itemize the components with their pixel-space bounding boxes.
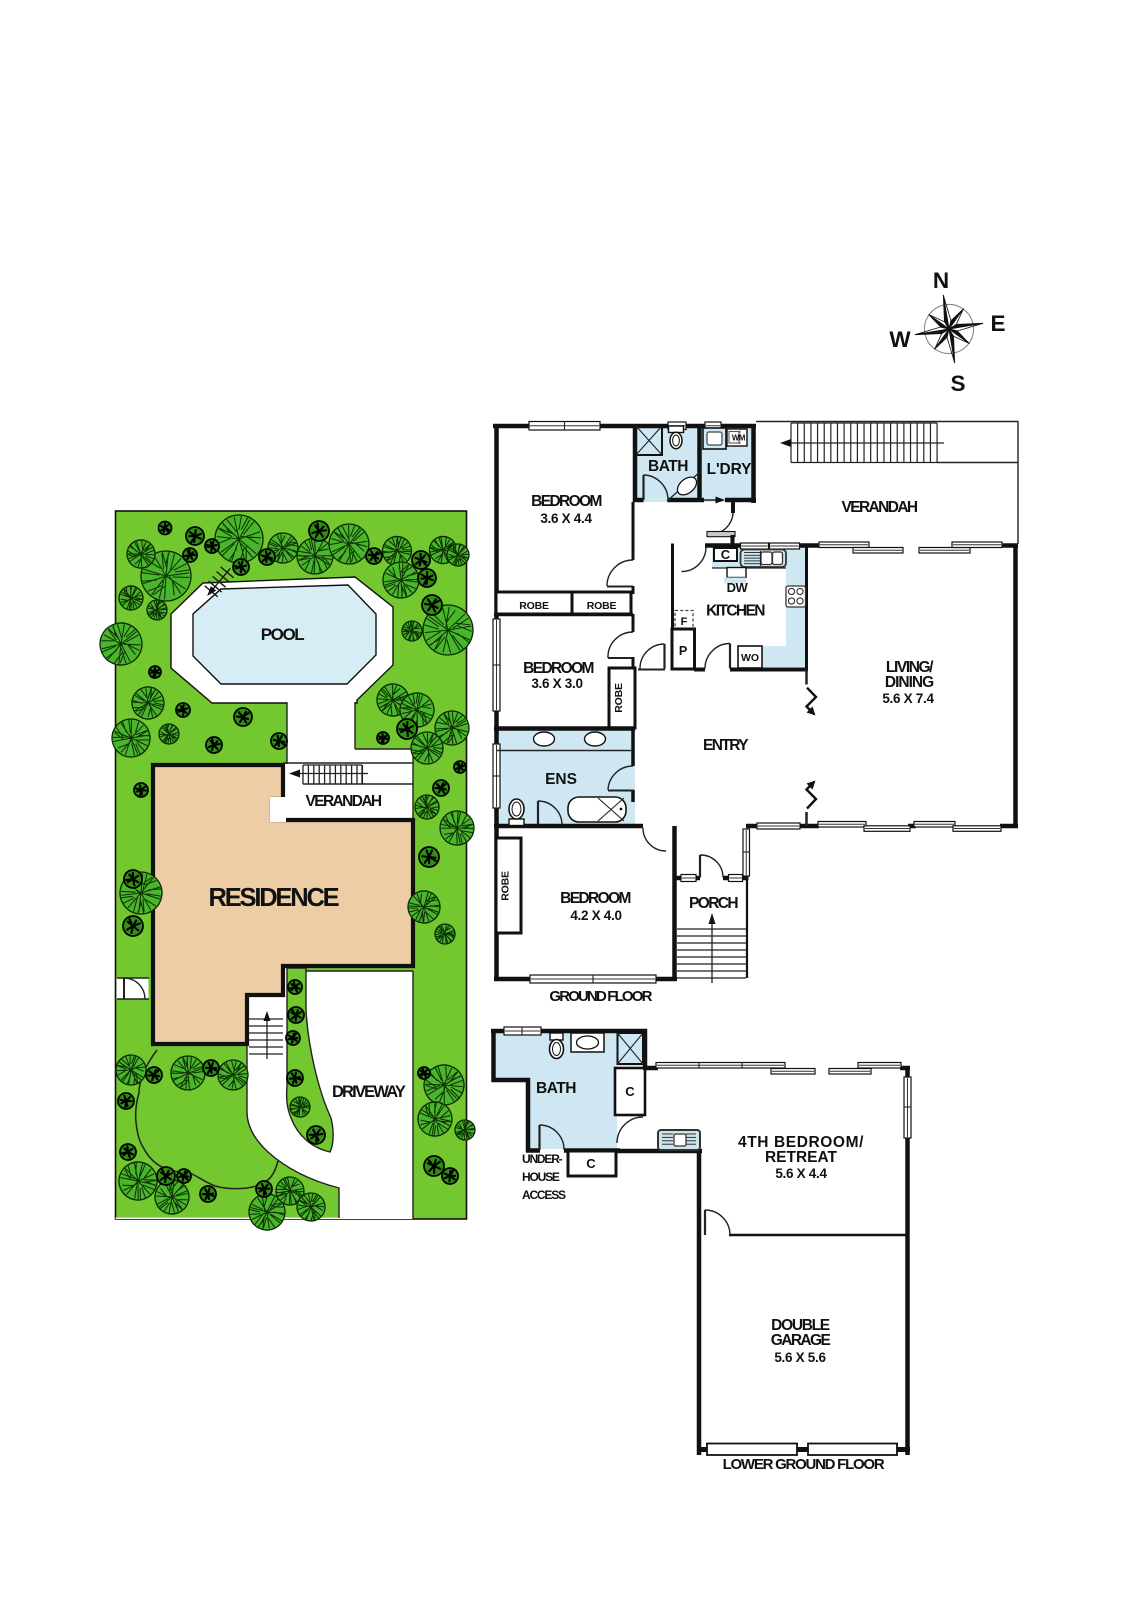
svg-text:RESIDENCE: RESIDENCE [209, 884, 340, 912]
svg-text:RETREAT: RETREAT [765, 1149, 838, 1166]
svg-text:E: E [990, 311, 1005, 336]
svg-text:5.6 X 4.4: 5.6 X 4.4 [775, 1166, 827, 1181]
svg-text:P: P [679, 644, 687, 658]
svg-text:S: S [950, 371, 965, 396]
svg-text:5.6 X 5.6: 5.6 X 5.6 [774, 1350, 826, 1365]
svg-text:ENS: ENS [545, 771, 577, 788]
svg-text:ENTRY: ENTRY [703, 737, 749, 754]
svg-text:WO: WO [741, 652, 759, 664]
svg-text:N: N [933, 268, 949, 293]
svg-text:BATH: BATH [536, 1080, 576, 1097]
svg-text:BATH: BATH [648, 458, 688, 475]
svg-text:ACCESS: ACCESS [522, 1188, 566, 1202]
svg-text:BEDROOM: BEDROOM [560, 890, 630, 907]
svg-text:KITCHEN: KITCHEN [706, 603, 765, 620]
svg-text:LOWER GROUND FLOOR: LOWER GROUND FLOOR [723, 1456, 885, 1473]
svg-text:L'DRY: L'DRY [707, 461, 753, 478]
svg-text:PORCH: PORCH [689, 895, 738, 912]
svg-text:C: C [586, 1156, 596, 1171]
svg-text:POOL: POOL [261, 625, 305, 644]
svg-text:BEDROOM: BEDROOM [531, 493, 601, 510]
svg-text:GROUND FLOOR: GROUND FLOOR [549, 988, 652, 1005]
svg-text:C: C [721, 547, 731, 562]
svg-text:UNDER-: UNDER- [522, 1152, 563, 1166]
svg-text:3.6 X 4.4: 3.6 X 4.4 [540, 511, 592, 526]
svg-text:C: C [625, 1084, 635, 1099]
svg-text:BEDROOM: BEDROOM [523, 660, 593, 677]
svg-text:HOUSE: HOUSE [522, 1170, 560, 1184]
svg-text:W: W [889, 327, 911, 352]
svg-text:DINING: DINING [885, 674, 934, 691]
svg-text:VERANDAH: VERANDAH [305, 793, 381, 810]
svg-text:4.2 X 4.0: 4.2 X 4.0 [570, 908, 621, 923]
svg-text:ROBE: ROBE [613, 683, 625, 713]
svg-text:3.6 X 3.0: 3.6 X 3.0 [531, 676, 582, 691]
svg-text:DW: DW [727, 580, 749, 595]
svg-text:WM: WM [732, 434, 745, 443]
svg-text:DRIVEWAY: DRIVEWAY [332, 1083, 406, 1101]
svg-text:F: F [681, 616, 688, 628]
svg-text:ROBE: ROBE [500, 871, 512, 901]
svg-text:VERANDAH: VERANDAH [841, 499, 917, 516]
svg-text:ROBE: ROBE [519, 600, 549, 612]
svg-text:5.6 X 7.4: 5.6 X 7.4 [882, 691, 934, 706]
svg-text:GARAGE: GARAGE [771, 1332, 831, 1349]
svg-text:ROBE: ROBE [587, 600, 617, 612]
